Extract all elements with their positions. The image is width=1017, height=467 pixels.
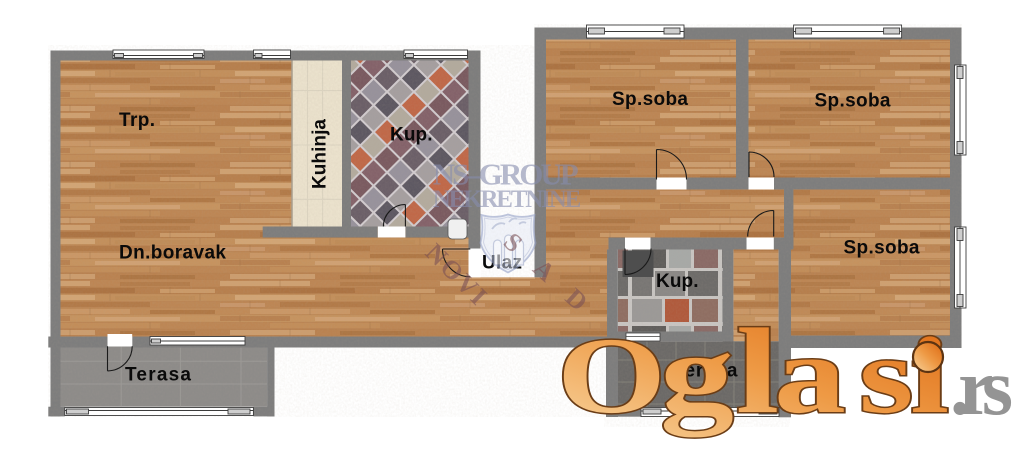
svg-text:Terasa: Terasa	[125, 365, 191, 386]
svg-text:Sp.soba: Sp.soba	[815, 91, 891, 112]
svg-text:Trp.: Trp.	[119, 110, 155, 131]
svg-text:Oglasi: Oglasi	[557, 304, 949, 439]
svg-text:Sp.soba: Sp.soba	[844, 238, 920, 259]
svg-text:.rs: .rs	[950, 344, 1013, 432]
svg-text:Kup.: Kup.	[656, 271, 699, 292]
svg-text:Sp.soba: Sp.soba	[612, 89, 688, 110]
svg-text:Dn.boravak: Dn.boravak	[119, 243, 226, 264]
svg-text:NEKRETNINE: NEKRETNINE	[433, 186, 582, 213]
svg-text:Kuhinja: Kuhinja	[310, 119, 331, 189]
svg-text:Kup.: Kup.	[390, 125, 433, 146]
